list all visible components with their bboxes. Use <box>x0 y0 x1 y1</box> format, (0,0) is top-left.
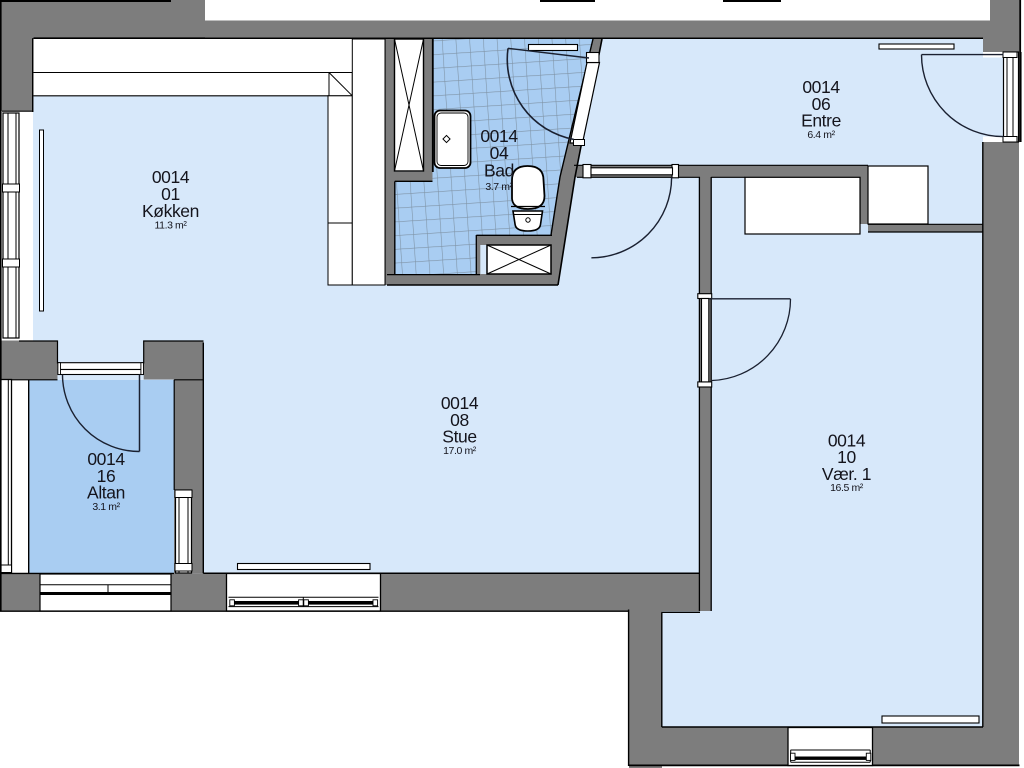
svg-text:Altan: Altan <box>87 483 125 503</box>
svg-text:Køkken: Køkken <box>142 201 199 221</box>
svg-text:Bad: Bad <box>484 161 514 181</box>
svg-text:6.4 m²: 6.4 m² <box>807 129 835 141</box>
svg-text:17.0 m²: 17.0 m² <box>443 445 477 457</box>
svg-text:Vær. 1: Vær. 1 <box>822 464 871 484</box>
svg-text:3.7 m²: 3.7 m² <box>485 181 513 193</box>
svg-text:Entre: Entre <box>801 111 841 131</box>
svg-text:Stue: Stue <box>442 427 476 447</box>
svg-text:16.5 m²: 16.5 m² <box>830 482 864 494</box>
svg-text:3.1 m²: 3.1 m² <box>92 501 120 513</box>
svg-text:11.3 m²: 11.3 m² <box>154 220 187 232</box>
